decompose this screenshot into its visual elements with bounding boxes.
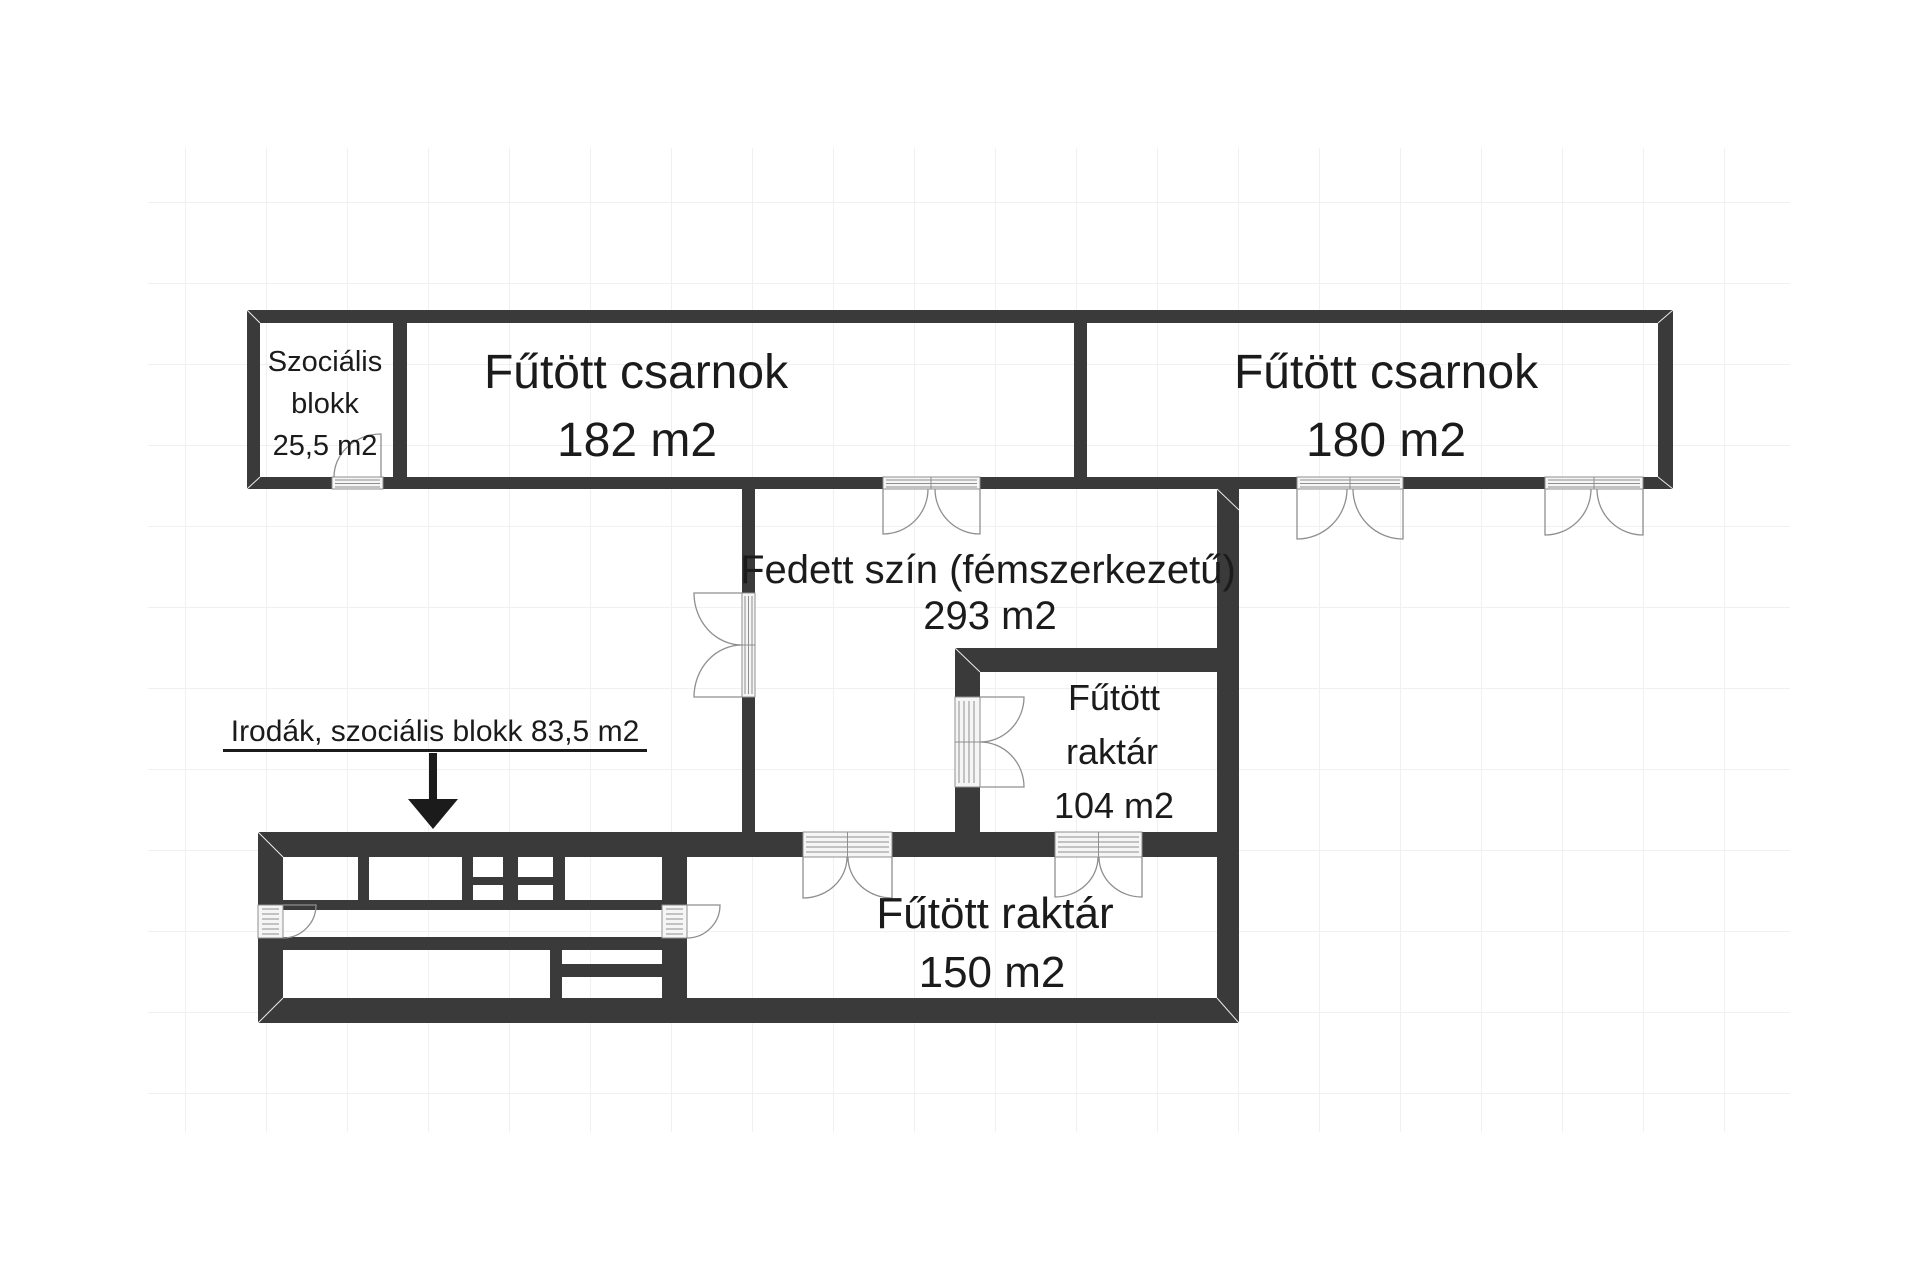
annotation-text: Irodák, szociális blokk 83,5 m2	[231, 715, 640, 748]
room-label-line: 150 m2	[919, 948, 1066, 997]
room-label-line: 293 m2	[923, 594, 1056, 638]
floor-plan-canvas: Szociális blokk 25,5 m2 Fűtött csarnok 1…	[0, 0, 1920, 1280]
room-label-raktar-104: Fűtött raktár 104 m2	[1054, 677, 1174, 826]
door-sill	[662, 905, 687, 938]
down-arrow-shaft	[429, 753, 437, 803]
room-label-line: 104 m2	[1054, 785, 1174, 826]
door-sill	[258, 905, 283, 938]
room-label-line: Fűtött raktár	[876, 889, 1113, 938]
room-label-line: Fűtött csarnok	[484, 346, 789, 399]
room-label-line: 25,5 m2	[273, 430, 378, 462]
floor-plan-page: Szociális blokk 25,5 m2 Fűtött csarnok 1…	[0, 0, 1920, 1280]
room-label-line: blokk	[291, 388, 359, 420]
annotation-underline	[223, 749, 647, 752]
room-label-line: 182 m2	[557, 414, 717, 467]
room-label-line: Fűtött csarnok	[1234, 346, 1539, 399]
room-label-line: Szociális	[268, 346, 382, 378]
room-label-line: raktár	[1066, 731, 1158, 772]
room-label-line: 180 m2	[1306, 414, 1466, 467]
room-label-line: Fűtött	[1068, 677, 1160, 718]
room-label-line: Fedett szín (fémszerkezetű)	[740, 548, 1236, 592]
